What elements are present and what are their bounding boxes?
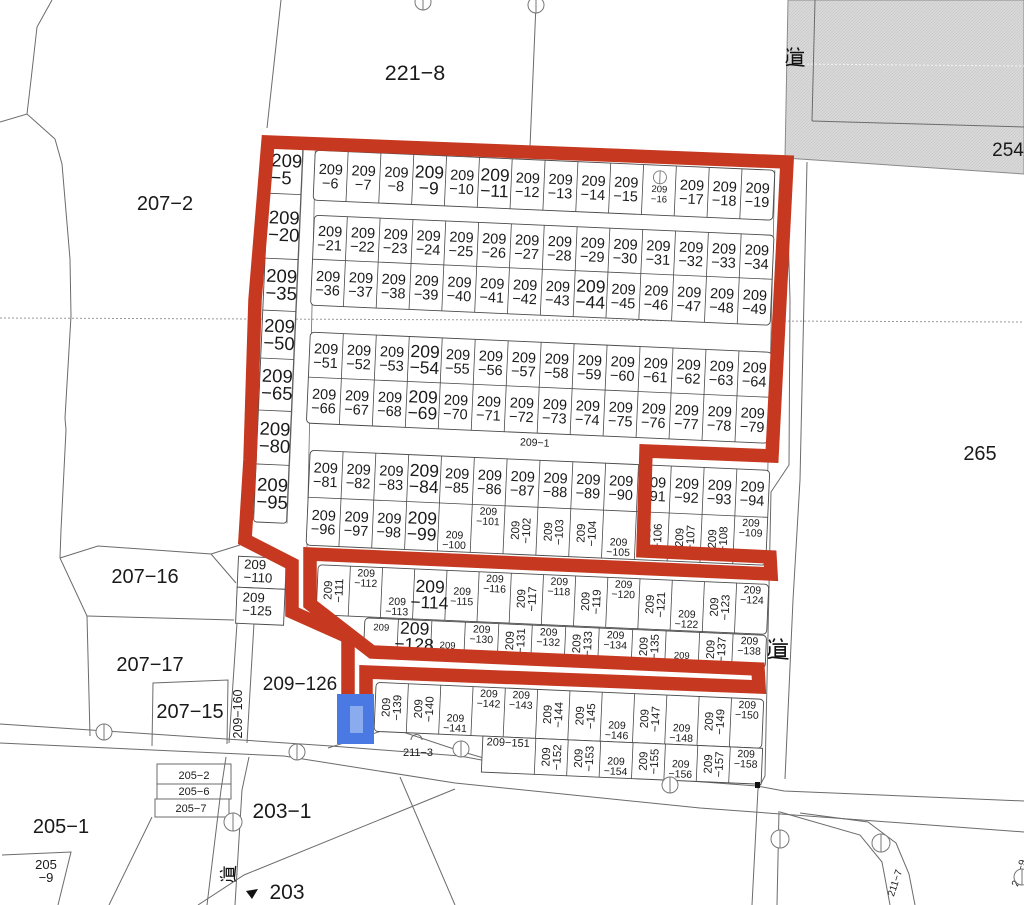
svg-text:−69: −69 [407,402,438,423]
svg-text:−7: −7 [354,177,371,194]
svg-text:−13: −13 [547,186,572,203]
svg-text:−117: −117 [526,586,539,612]
svg-text:−93: −93 [706,491,731,508]
svg-text:−115: −115 [450,595,474,608]
svg-text:−85: −85 [444,480,469,497]
svg-text:−103: −103 [553,519,566,545]
svg-text:−99: −99 [406,523,437,544]
svg-text:−24: −24 [415,242,440,259]
svg-text:−22: −22 [350,239,375,256]
svg-text:−114: −114 [410,592,449,614]
svg-text:−59: −59 [577,367,602,384]
svg-text:−89: −89 [575,486,600,503]
svg-text:−148: −148 [669,732,693,745]
svg-text:−63: −63 [708,372,733,389]
svg-text:−36: −36 [315,283,340,300]
svg-text:−33: −33 [711,255,736,272]
svg-text:207−2: 207−2 [137,193,193,215]
svg-text:−34: −34 [744,256,769,273]
svg-text:−87: −87 [510,483,535,500]
svg-text:203−1: 203−1 [253,800,312,823]
svg-text:−82: −82 [345,476,370,493]
svg-text:−102: −102 [521,518,534,544]
svg-text:−113: −113 [385,606,409,619]
svg-text:−132: −132 [536,636,560,649]
svg-text:−50: −50 [263,332,295,354]
svg-text:203: 203 [269,881,304,904]
svg-text:−118: −118 [547,586,571,599]
svg-text:−145: −145 [585,703,598,729]
svg-text:−153: −153 [584,746,597,772]
svg-text:−64: −64 [741,374,766,391]
svg-text:207−17: 207−17 [116,654,183,676]
svg-text:−123: −123 [719,594,732,620]
svg-text:205−2: 205−2 [179,770,210,782]
svg-text:−62: −62 [676,371,701,388]
svg-text:−142: −142 [476,698,500,711]
svg-text:−15: −15 [613,188,638,205]
svg-text:−96: −96 [310,522,335,539]
svg-text:−21: −21 [317,238,342,255]
svg-text:−131: −131 [515,628,528,654]
svg-text:−49: −49 [742,301,767,318]
svg-text:207−16: 207−16 [111,566,178,588]
svg-text:−12: −12 [515,184,540,201]
svg-text:−17: −17 [679,191,704,208]
svg-text:−97: −97 [343,523,368,540]
svg-text:−154: −154 [603,765,627,778]
svg-text:−55: −55 [445,361,470,378]
svg-text:207−15: 207−15 [156,701,223,723]
svg-text:−80: −80 [258,435,290,457]
svg-text:−10: −10 [449,181,474,198]
svg-text:−72: −72 [509,409,534,426]
svg-text:−52: −52 [346,356,371,373]
svg-text:−37: −37 [348,284,373,301]
svg-text:−67: −67 [344,402,369,419]
svg-text:−57: −57 [511,364,536,381]
svg-text:−41: −41 [479,290,504,307]
svg-text:−54: −54 [409,357,440,378]
svg-text:265: 265 [963,443,996,465]
svg-text:−56: −56 [478,362,503,379]
svg-text:−42: −42 [512,291,537,308]
svg-text:211−3: 211−3 [403,747,433,759]
svg-text:−23: −23 [383,240,408,257]
svg-text:−74: −74 [575,412,600,429]
svg-text:209−126: 209−126 [263,674,338,695]
svg-text:−61: −61 [643,369,668,386]
svg-text:−119: −119 [591,589,604,615]
svg-text:−94: −94 [739,493,764,510]
svg-text:−101: −101 [476,515,500,528]
svg-text:−81: −81 [313,474,338,491]
svg-text:−98: −98 [376,524,401,541]
svg-text:−137: −137 [716,637,729,663]
svg-text:221−8: 221−8 [385,61,445,85]
svg-text:−121: −121 [655,592,668,618]
svg-text:−76: −76 [641,415,666,432]
svg-text:−47: −47 [676,298,701,315]
svg-text:−125: −125 [242,602,272,618]
svg-text:−144: −144 [553,701,566,728]
svg-text:−138: −138 [737,645,761,658]
svg-text:−77: −77 [674,416,699,433]
svg-text:−46: −46 [643,297,668,314]
svg-text:205−6: 205−6 [179,786,210,798]
svg-text:−79: −79 [739,419,764,436]
svg-text:−140: −140 [424,696,437,722]
svg-text:−9: −9 [39,870,54,885]
svg-text:−39: −39 [413,287,438,304]
svg-text:−11: −11 [480,180,509,201]
svg-text:205−1: 205−1 [33,816,89,838]
svg-text:−35: −35 [265,282,297,304]
svg-text:−105: −105 [606,546,630,559]
svg-text:−133: −133 [582,631,595,657]
svg-text:−20: −20 [268,223,300,245]
svg-text:−70: −70 [443,406,468,423]
svg-text:−51: −51 [313,355,338,372]
svg-text:−104: −104 [586,520,599,547]
svg-text:−6: −6 [322,176,339,193]
svg-text:205−7: 205−7 [176,803,207,815]
svg-text:−157: −157 [713,751,726,777]
svg-text:−152: −152 [551,744,564,770]
svg-text:−150: −150 [735,709,759,722]
svg-text:−29: −29 [580,249,605,266]
svg-text:−9: −9 [418,178,439,199]
svg-text:−130: −130 [469,633,493,646]
svg-text:−92: −92 [674,490,699,507]
svg-text:−147: −147 [650,706,663,732]
svg-text:−5: −5 [270,166,292,188]
svg-text:−143: −143 [509,699,533,712]
svg-text:−149: −149 [714,709,727,735]
svg-text:−40: −40 [446,288,471,305]
svg-text:−109: −109 [739,527,763,540]
svg-text:−135: −135 [649,634,662,660]
svg-text:−25: −25 [448,243,473,260]
svg-text:−58: −58 [544,365,569,382]
svg-text:−65: −65 [261,382,293,404]
svg-text:−120: −120 [611,588,635,601]
svg-text:−88: −88 [542,484,567,501]
svg-text:209−160: 209−160 [231,689,245,738]
svg-text:−68: −68 [377,403,402,420]
svg-text:−139: −139 [391,695,404,721]
svg-text:209: 209 [373,622,389,634]
svg-text:−27: −27 [514,246,539,263]
svg-text:−45: −45 [610,295,635,312]
svg-text:−84: −84 [408,476,439,497]
svg-text:−28: −28 [547,248,572,265]
svg-text:−48: −48 [709,300,734,317]
svg-text:−146: −146 [604,729,628,742]
svg-text:−38: −38 [381,285,406,302]
svg-text:−134: −134 [603,639,627,652]
svg-text:−14: −14 [580,187,605,204]
svg-text:−155: −155 [648,748,661,774]
svg-text:−18: −18 [712,193,737,210]
svg-text:−71: −71 [476,408,501,425]
svg-text:−112: −112 [354,577,378,590]
svg-text:−124: −124 [740,594,764,607]
svg-text:−8: −8 [387,179,404,196]
svg-text:−122: −122 [674,618,698,631]
svg-text:−26: −26 [481,245,506,262]
svg-text:209−151: 209−151 [486,736,530,750]
svg-text:254: 254 [992,140,1024,161]
svg-text:−32: −32 [678,253,703,270]
svg-text:−100: −100 [442,539,466,552]
svg-text:−31: −31 [645,252,670,269]
svg-text:−30: −30 [612,250,637,267]
svg-text:−95: −95 [256,491,288,513]
svg-text:−66: −66 [311,400,336,417]
svg-text:−110: −110 [243,569,272,585]
svg-text:−86: −86 [477,481,502,498]
svg-text:−43: −43 [545,293,570,310]
svg-text:−78: −78 [706,418,731,435]
svg-text:−116: −116 [483,583,507,596]
svg-text:−73: −73 [542,411,567,428]
svg-text:209−1: 209−1 [520,436,550,449]
svg-text:−83: −83 [378,477,403,494]
svg-text:−141: −141 [443,722,467,735]
svg-text:−111: −111 [333,578,346,603]
svg-text:−158: −158 [734,758,758,771]
svg-text:−19: −19 [744,194,769,211]
svg-text:−44: −44 [575,292,606,313]
svg-text:−75: −75 [608,413,633,430]
svg-text:−60: −60 [610,368,635,385]
svg-text:−16: −16 [651,194,668,206]
svg-text:−90: −90 [608,487,633,504]
svg-text:−53: −53 [379,358,404,375]
